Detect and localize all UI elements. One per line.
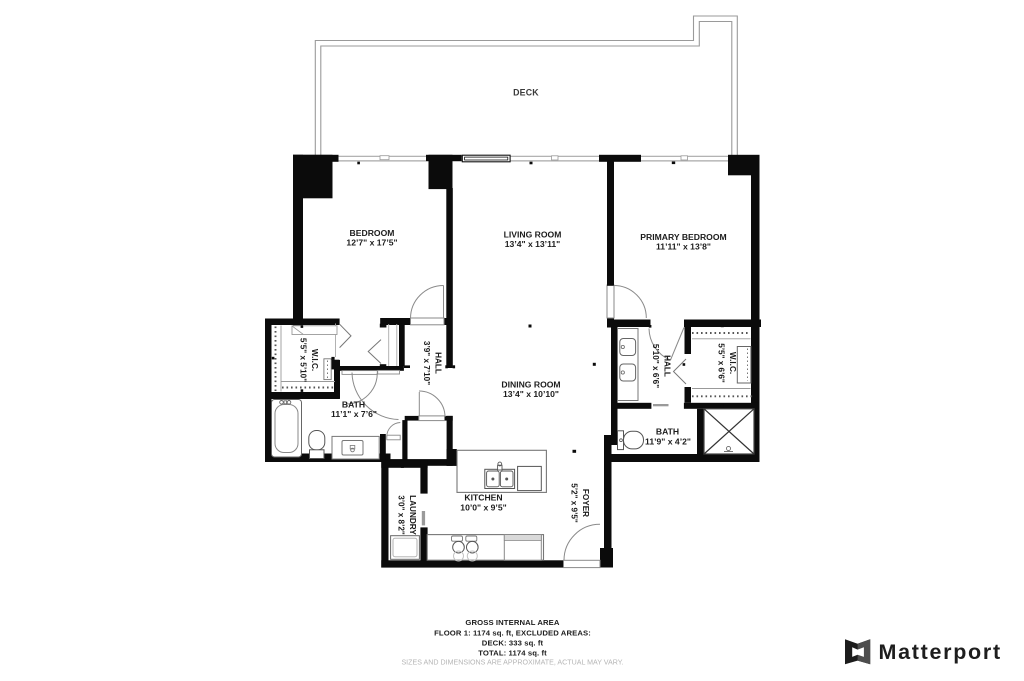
svg-text:LIVING ROOM: LIVING ROOM: [504, 230, 562, 240]
svg-text:BATH: BATH: [656, 427, 679, 437]
svg-text:TOTAL: 1174 sq. ft: TOTAL: 1174 sq. ft: [478, 648, 547, 657]
svg-text:3’0" x 8’2": 3’0" x 8’2": [397, 495, 406, 535]
svg-text:5’10" x 6’6": 5’10" x 6’6": [651, 344, 660, 388]
svg-text:LAUNDRY: LAUNDRY: [408, 495, 417, 535]
svg-text:DECK: 333 sq. ft: DECK: 333 sq. ft: [482, 639, 544, 648]
svg-text:BEDROOM: BEDROOM: [350, 228, 395, 238]
svg-text:W.I.C.: W.I.C.: [310, 349, 319, 371]
svg-text:FLOOR 1: 1174 sq. ft, EXCLUDED: FLOOR 1: 1174 sq. ft, EXCLUDED AREAS:: [434, 628, 591, 637]
svg-text:5’2" x 9’5": 5’2" x 9’5": [570, 483, 579, 523]
svg-text:5’5" x 6’6": 5’5" x 6’6": [717, 343, 726, 383]
svg-text:5’5" x 5’10": 5’5" x 5’10": [299, 338, 308, 382]
svg-text:HALL: HALL: [663, 355, 672, 377]
svg-text:DECK: DECK: [513, 88, 539, 98]
svg-text:13’4" x 10’10": 13’4" x 10’10": [503, 389, 559, 399]
svg-text:Matterport: Matterport: [879, 640, 1002, 664]
svg-text:11’9" x 4’2": 11’9" x 4’2": [645, 436, 691, 446]
svg-text:W.I.C.: W.I.C.: [728, 352, 737, 374]
svg-text:HALL: HALL: [434, 352, 443, 374]
svg-text:11’11" x 13’8": 11’11" x 13’8": [656, 242, 711, 252]
svg-text:12’7" x 17’5": 12’7" x 17’5": [346, 238, 397, 248]
svg-text:13’4" x 13’11": 13’4" x 13’11": [505, 239, 560, 249]
svg-text:3’9" x 7’10": 3’9" x 7’10": [422, 341, 431, 385]
svg-text:11’1" x 7’6": 11’1" x 7’6": [331, 409, 377, 419]
svg-text:DINING ROOM: DINING ROOM: [501, 380, 560, 390]
svg-text:FOYER: FOYER: [581, 489, 590, 517]
svg-text:GROSS INTERNAL AREA: GROSS INTERNAL AREA: [465, 618, 560, 627]
svg-text:SIZES AND DIMENSIONS ARE APPRO: SIZES AND DIMENSIONS ARE APPROXIMATE, AC…: [401, 659, 623, 667]
svg-text:PRIMARY BEDROOM: PRIMARY BEDROOM: [640, 232, 726, 242]
svg-text:10’0" x 9’5": 10’0" x 9’5": [460, 503, 506, 513]
svg-text:KITCHEN: KITCHEN: [464, 493, 502, 503]
